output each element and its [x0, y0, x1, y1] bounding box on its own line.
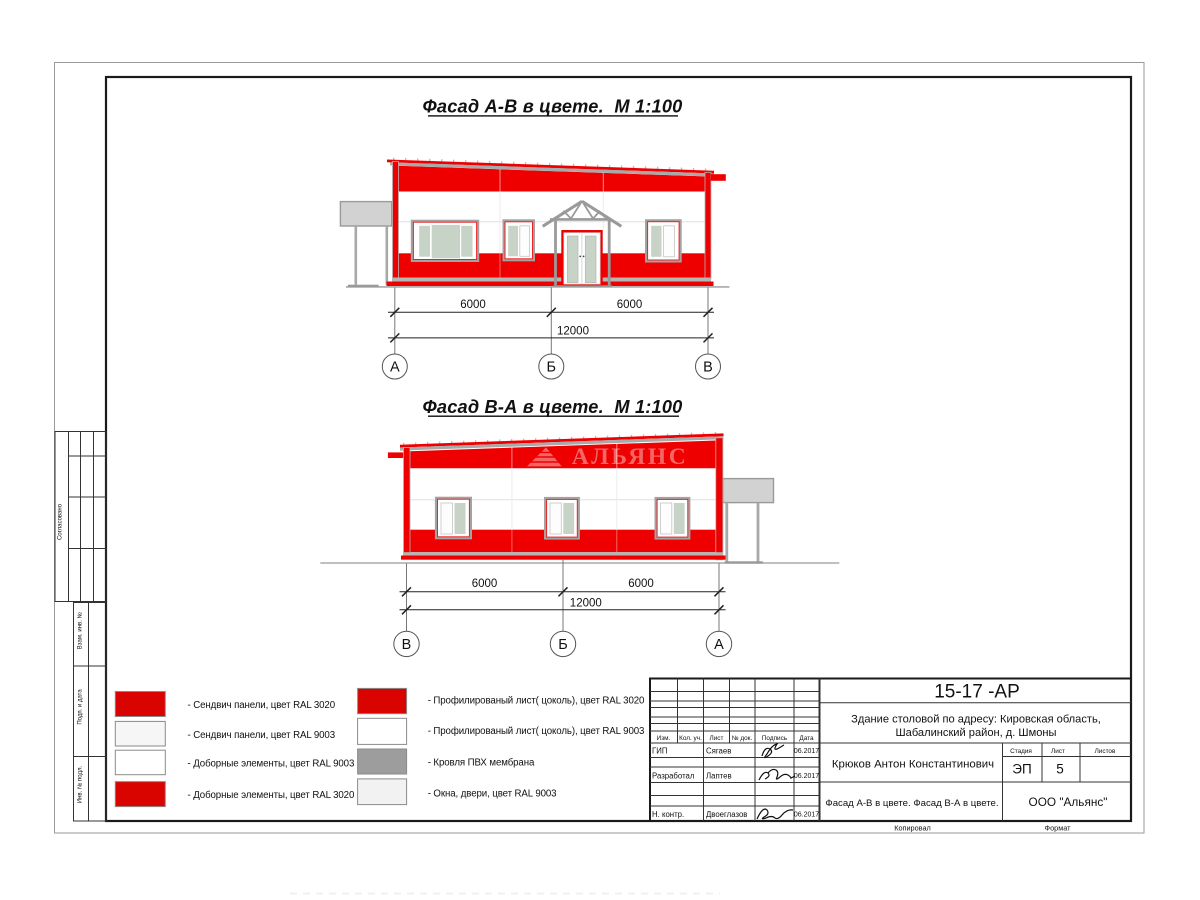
svg-text:Лаптев: Лаптев	[706, 772, 732, 781]
svg-text:ЭП: ЭП	[1012, 762, 1031, 777]
svg-text:Формат: Формат	[1045, 824, 1072, 833]
svg-text:15-17 -АР: 15-17 -АР	[934, 682, 1020, 703]
svg-text:ГИП: ГИП	[652, 747, 667, 756]
svg-text:12000: 12000	[570, 597, 602, 609]
svg-text:Здание столовой по адресу: Кир: Здание столовой по адресу: Кировская обл…	[851, 714, 1101, 726]
svg-text:ООО "Альянс": ООО "Альянс"	[1029, 795, 1108, 809]
svg-text:Согласовано: Согласовано	[58, 503, 64, 540]
svg-text:06.2017: 06.2017	[794, 748, 819, 755]
svg-text:- Сендвич панели, цвет RAL 302: - Сендвич панели, цвет RAL 3020	[188, 700, 336, 711]
svg-text:6000: 6000	[628, 578, 654, 590]
svg-text:6000: 6000	[472, 578, 498, 590]
svg-text:- Кровля ПВХ мембрана: - Кровля ПВХ мембрана	[428, 757, 535, 768]
svg-text:Б: Б	[547, 360, 557, 376]
svg-text:12000: 12000	[557, 326, 589, 338]
svg-text:- Доборные элементы, цвет RAL: - Доборные элементы, цвет RAL 9003	[188, 759, 355, 770]
svg-text:Подпись: Подпись	[762, 735, 788, 742]
svg-text:- Профилированый лист( цоколь): - Профилированый лист( цоколь), цвет RAL…	[428, 726, 645, 737]
svg-text:Лист: Лист	[710, 735, 724, 742]
svg-text:6000: 6000	[460, 299, 486, 311]
svg-text:Листов: Листов	[1095, 748, 1116, 755]
svg-text:5: 5	[1056, 762, 1064, 777]
svg-text:Кол. уч.: Кол. уч.	[679, 735, 702, 742]
svg-text:Подп. и дата: Подп. и дата	[77, 689, 83, 725]
svg-text:А: А	[390, 360, 400, 376]
svg-text:- Сендвич панели, цвет RAL 900: - Сендвич панели, цвет RAL 9003	[188, 730, 336, 741]
svg-text:Дата: Дата	[799, 735, 814, 742]
svg-text:- Окна, двери, цвет RAL 9003: - Окна, двери, цвет RAL 9003	[428, 788, 557, 799]
svg-text:Лист: Лист	[1051, 748, 1065, 755]
svg-text:АЛЬЯНС: АЛЬЯНС	[572, 444, 689, 470]
svg-text:- Доборные элементы, цвет RAL: - Доборные элементы, цвет RAL 3020	[188, 790, 355, 801]
svg-text:Взам. инв. №: Взам. инв. №	[76, 612, 83, 649]
svg-text:- Профилированый лист( цоколь): - Профилированый лист( цоколь), цвет RAL…	[428, 696, 645, 707]
svg-text:Стадия: Стадия	[1010, 748, 1032, 755]
svg-text:Крюков Антон Константинович: Крюков Антон Константинович	[832, 759, 994, 771]
svg-text:№ док.: № док.	[732, 735, 753, 742]
svg-text:Н. контр.: Н. контр.	[652, 810, 684, 819]
svg-text:Шабалинский район, д. Шмоны: Шабалинский район, д. Шмоны	[896, 727, 1057, 739]
svg-text:Сягаев: Сягаев	[706, 747, 731, 756]
svg-text:Двоеглазов: Двоеглазов	[706, 810, 747, 819]
svg-text:В: В	[703, 360, 713, 376]
svg-text:А: А	[714, 637, 724, 653]
svg-text:Б: Б	[558, 637, 568, 653]
svg-text:Копировал: Копировал	[894, 824, 931, 833]
svg-text:В: В	[402, 637, 412, 653]
svg-text:06.2017: 06.2017	[794, 812, 819, 819]
svg-text:06.2017: 06.2017	[794, 773, 819, 780]
svg-text:Инв. № подл.: Инв. № подл.	[76, 765, 83, 803]
svg-text:Фасад А-В в цвете. Фасад В-А в: Фасад А-В в цвете. Фасад В-А в цвете.	[825, 798, 998, 809]
svg-text:Изм.: Изм.	[657, 735, 671, 742]
svg-text:Фасад А-В в цвете. М 1:100: Фасад А-В в цвете. М 1:100	[423, 97, 683, 117]
svg-text:Разработал: Разработал	[652, 772, 695, 781]
svg-text:Фасад В-А в цвете. М 1:100: Фасад В-А в цвете. М 1:100	[423, 397, 683, 417]
svg-text:6000: 6000	[617, 299, 643, 311]
